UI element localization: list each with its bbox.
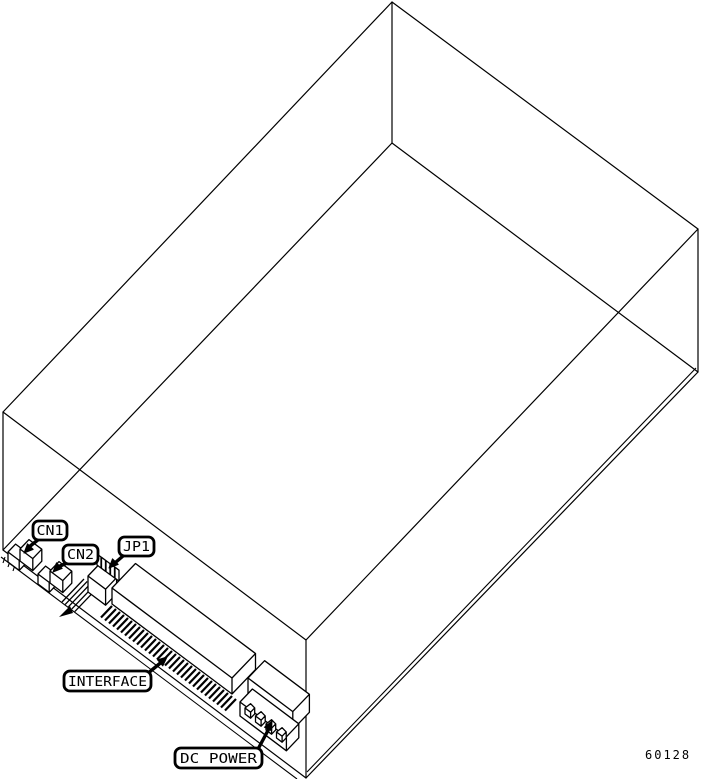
- top-face-edges: [3, 2, 698, 640]
- jp1-callout: JP1: [109, 537, 154, 568]
- cn2-callout-label: CN2: [67, 548, 94, 563]
- jp1-cable-arrowhead: [59, 606, 73, 617]
- interface-callout-label: INTERFACE: [68, 675, 147, 690]
- vertical-edges: [3, 2, 698, 778]
- technical-diagram: CN1 CN2 JP1 INTERFACE DC POWER 60128: [0, 0, 701, 779]
- cn1-callout-label: CN1: [37, 524, 64, 539]
- enclosure-wireframe: [1, 2, 698, 779]
- cn2-callout: CN2: [53, 545, 98, 572]
- diagram-canvas: CN1 CN2 JP1 INTERFACE DC POWER 60128: [0, 0, 701, 779]
- jp1-callout-label: JP1: [123, 540, 150, 555]
- figure-number: 60128: [645, 748, 691, 762]
- dc-power-callout-label: DC POWER: [180, 752, 257, 767]
- cn1-callout: CN1: [24, 521, 67, 553]
